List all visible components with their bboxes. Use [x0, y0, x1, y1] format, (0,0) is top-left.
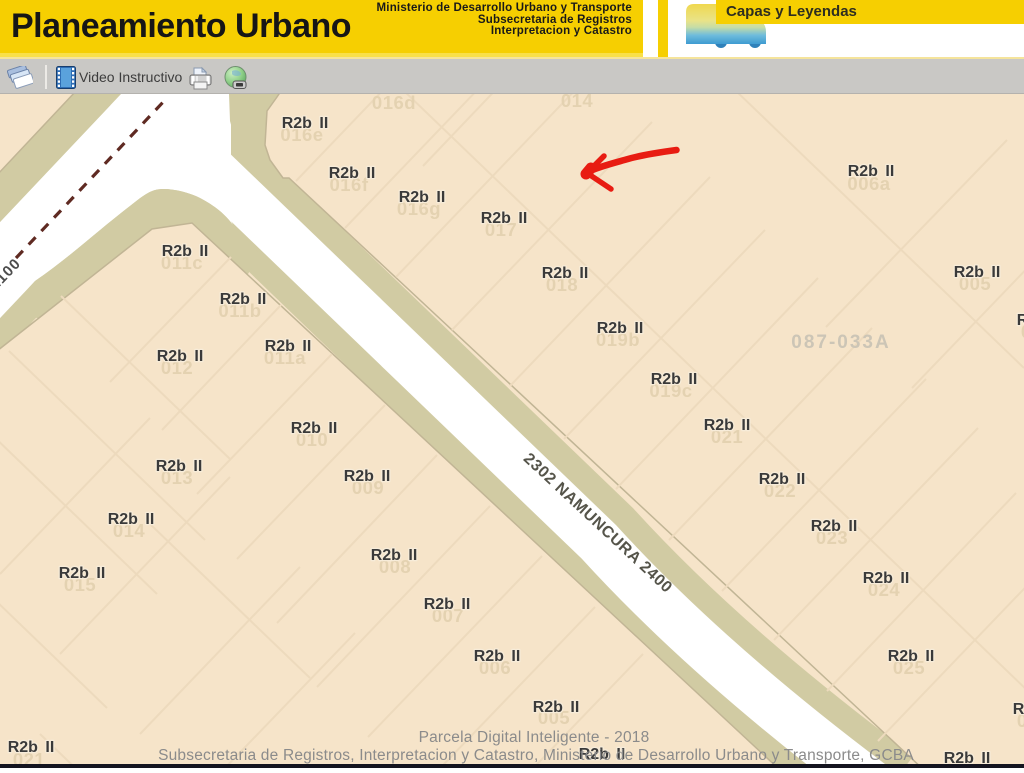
svg-text:R2b II: R2b II — [481, 210, 528, 227]
svg-text:R2b II: R2b II — [399, 189, 446, 206]
svg-text:R2b II: R2b II — [59, 565, 106, 582]
svg-text:R2b II: R2b II — [651, 371, 698, 388]
svg-text:R2b II: R2b II — [329, 165, 376, 182]
svg-text:R2b II: R2b II — [542, 265, 589, 282]
svg-text:R2b II: R2b II — [811, 518, 858, 535]
svg-text:087-033A: 087-033A — [791, 332, 890, 353]
svg-text:R2b II: R2b II — [8, 739, 55, 756]
svg-text:R2b II: R2b II — [282, 115, 329, 132]
svg-text:R2b II: R2b II — [1013, 701, 1024, 718]
svg-text:R2b II: R2b II — [344, 468, 391, 485]
svg-text:R2b II: R2b II — [162, 243, 209, 260]
svg-text:R2b II: R2b II — [265, 338, 312, 355]
svg-text:R2b II: R2b II — [888, 648, 935, 665]
svg-text:R2b II: R2b II — [156, 458, 203, 475]
svg-text:016d: 016d — [372, 94, 416, 113]
svg-text:014: 014 — [561, 94, 594, 111]
svg-text:R2b II: R2b II — [848, 163, 895, 180]
svg-text:R2b II: R2b II — [474, 648, 521, 665]
svg-text:R2b II: R2b II — [597, 320, 644, 337]
svg-text:R2b II: R2b II — [954, 264, 1001, 281]
svg-text:R2b II: R2b II — [157, 348, 204, 365]
svg-text:R2b II: R2b II — [291, 420, 338, 437]
svg-text:R2b II: R2b II — [863, 570, 910, 587]
svg-text:R2b II: R2b II — [371, 547, 418, 564]
svg-text:R2b II: R2b II — [1017, 312, 1024, 329]
svg-text:R2b II: R2b II — [533, 699, 580, 716]
svg-text:R2b II: R2b II — [704, 417, 751, 434]
svg-text:R2b II: R2b II — [220, 291, 267, 308]
svg-text:R2b II: R2b II — [759, 471, 806, 488]
svg-text:Parcela Digital Inteligente -: Parcela Digital Inteligente - 2018 — [419, 729, 650, 746]
svg-text:Subsecretaria de Registros, In: Subsecretaria de Registros, Interpretaci… — [158, 747, 914, 764]
svg-text:R2b II: R2b II — [424, 596, 471, 613]
svg-text:R2b II: R2b II — [108, 511, 155, 528]
